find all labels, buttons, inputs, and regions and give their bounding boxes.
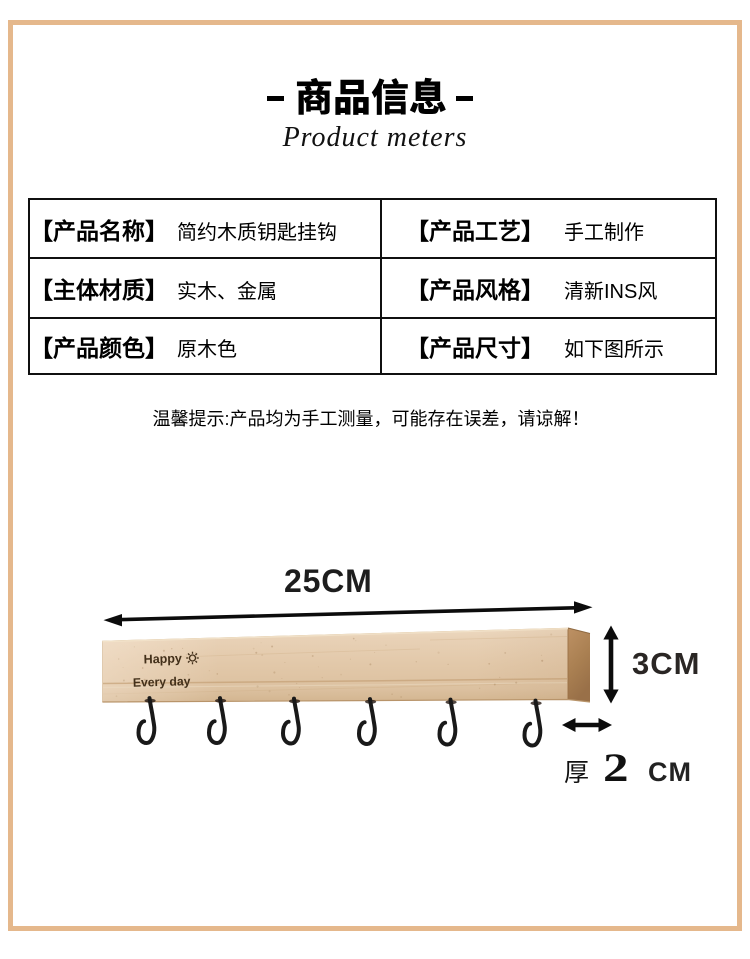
svg-text:Happy: Happy	[144, 651, 183, 666]
svg-text:Every day: Every day	[133, 674, 191, 690]
